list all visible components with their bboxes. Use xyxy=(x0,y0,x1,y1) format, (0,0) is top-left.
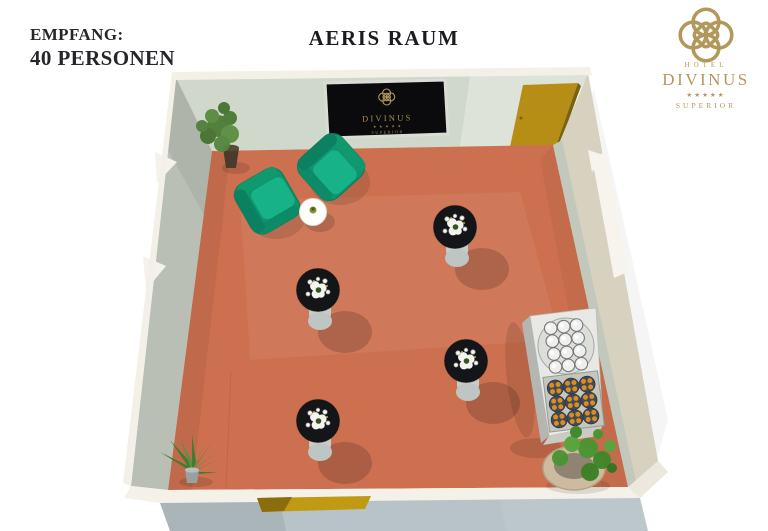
logo-hotel-word: HOTEL xyxy=(648,61,764,69)
wall-sign: DIVINUS ★ ★ ★ ★ ★ SUPERIOR xyxy=(325,80,448,138)
buffet-cup-tray xyxy=(538,318,594,374)
buffet-food-tray xyxy=(543,371,604,432)
hotel-logo: HOTEL DIVINUS ★★★★★ SUPERIOR xyxy=(648,6,764,110)
logo-brand-name: DIVINUS xyxy=(648,70,764,90)
wall-sign-name: DIVINUS xyxy=(362,112,413,123)
divinus-knot-icon xyxy=(677,6,735,64)
logo-tier: SUPERIOR xyxy=(648,101,764,110)
logo-stars: ★★★★★ xyxy=(648,91,764,99)
wall-sign-stars: ★ ★ ★ ★ ★ xyxy=(373,124,402,129)
wall-sign-tier: SUPERIOR xyxy=(371,129,403,135)
floorplan-page: DIVINUS ★ ★ ★ ★ ★ SUPERIOR xyxy=(0,0,768,531)
